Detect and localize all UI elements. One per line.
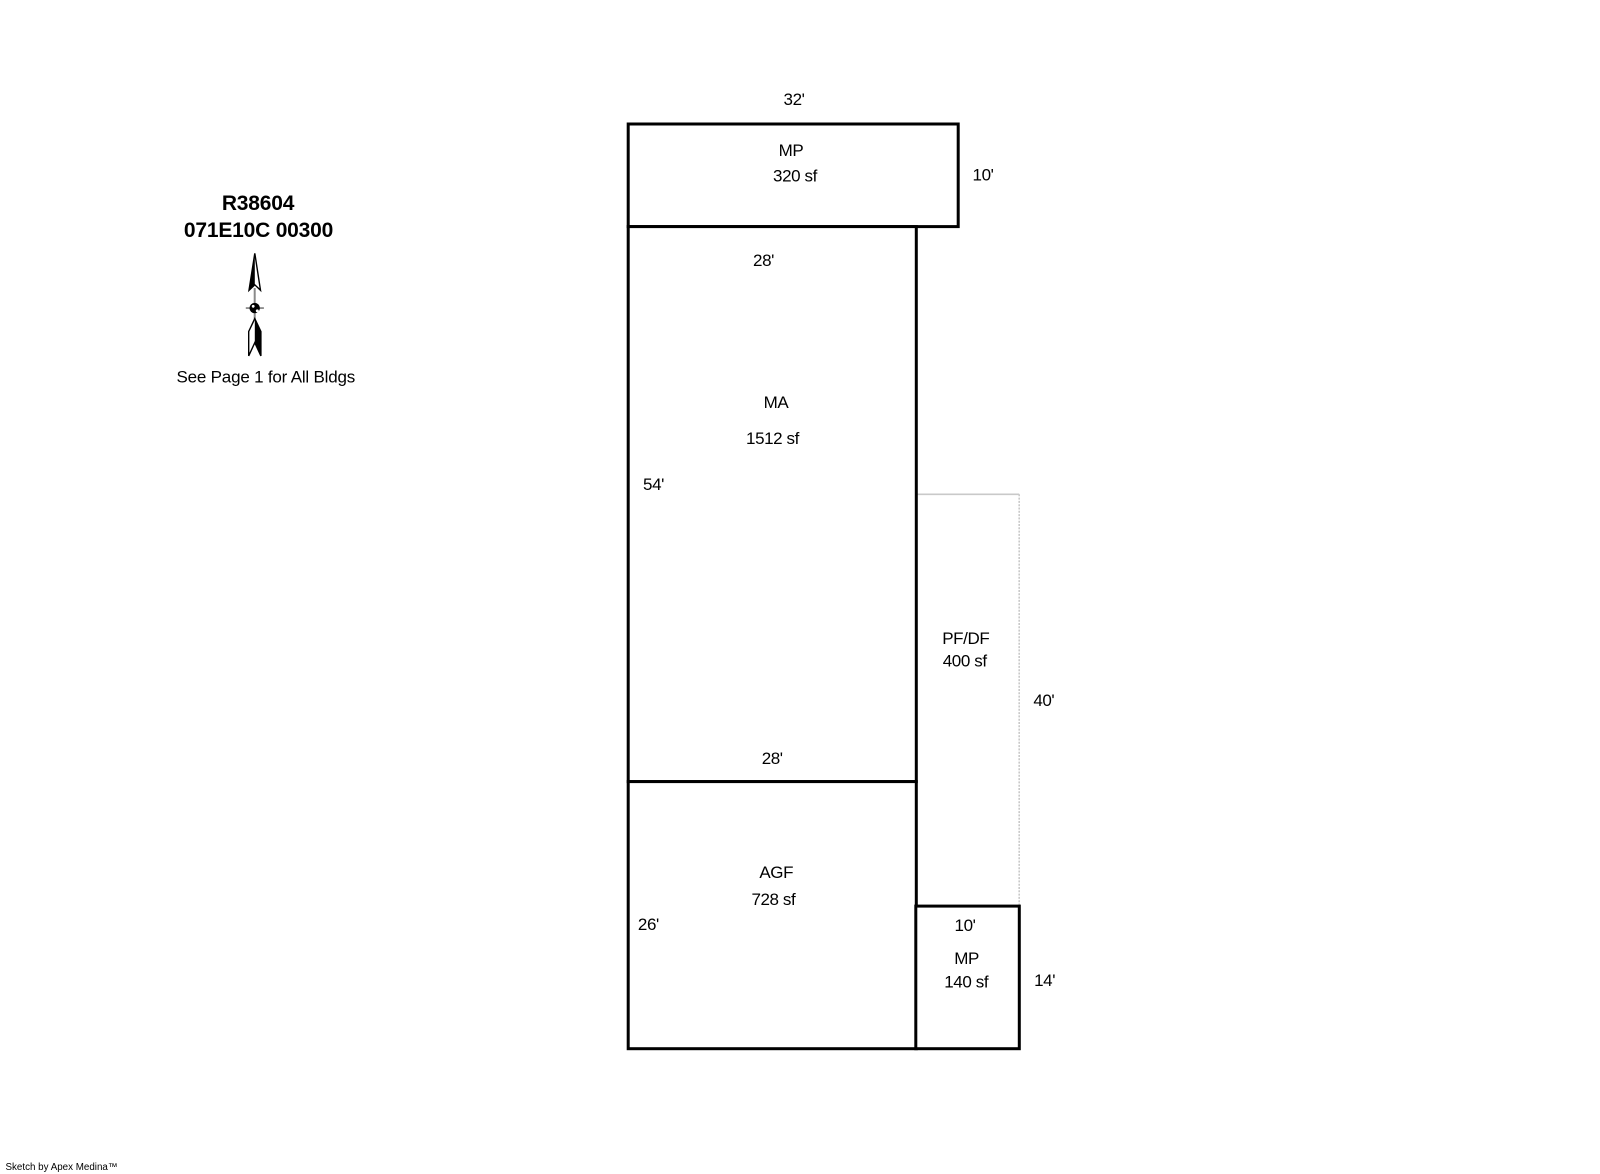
svg-text:MP: MP xyxy=(779,141,804,160)
svg-text:728 sf: 728 sf xyxy=(751,890,796,909)
svg-text:28': 28' xyxy=(762,749,783,768)
svg-text:MA: MA xyxy=(764,393,790,412)
svg-text:28': 28' xyxy=(753,251,774,270)
svg-text:1512 sf: 1512 sf xyxy=(746,429,800,448)
svg-text:See Page 1 for All Bldgs: See Page 1 for All Bldgs xyxy=(177,368,356,387)
svg-text:PF/DF: PF/DF xyxy=(942,629,989,648)
svg-text:MP: MP xyxy=(954,949,979,968)
svg-text:140 sf: 140 sf xyxy=(944,973,989,992)
svg-text:320 sf: 320 sf xyxy=(773,166,818,185)
svg-text:26': 26' xyxy=(638,915,659,934)
svg-text:54': 54' xyxy=(643,475,664,494)
svg-text:400 sf: 400 sf xyxy=(943,652,988,671)
svg-text:AGF: AGF xyxy=(759,863,793,882)
svg-text:10': 10' xyxy=(955,916,976,935)
svg-text:10': 10' xyxy=(973,166,994,185)
svg-text:Sketch by Apex Medina™: Sketch by Apex Medina™ xyxy=(6,1162,118,1173)
svg-text:071E10C 00300: 071E10C 00300 xyxy=(184,219,333,242)
svg-text:14': 14' xyxy=(1034,971,1055,990)
svg-text:R38604: R38604 xyxy=(222,192,295,215)
svg-text:32': 32' xyxy=(784,90,805,109)
svg-text:40': 40' xyxy=(1033,691,1054,710)
